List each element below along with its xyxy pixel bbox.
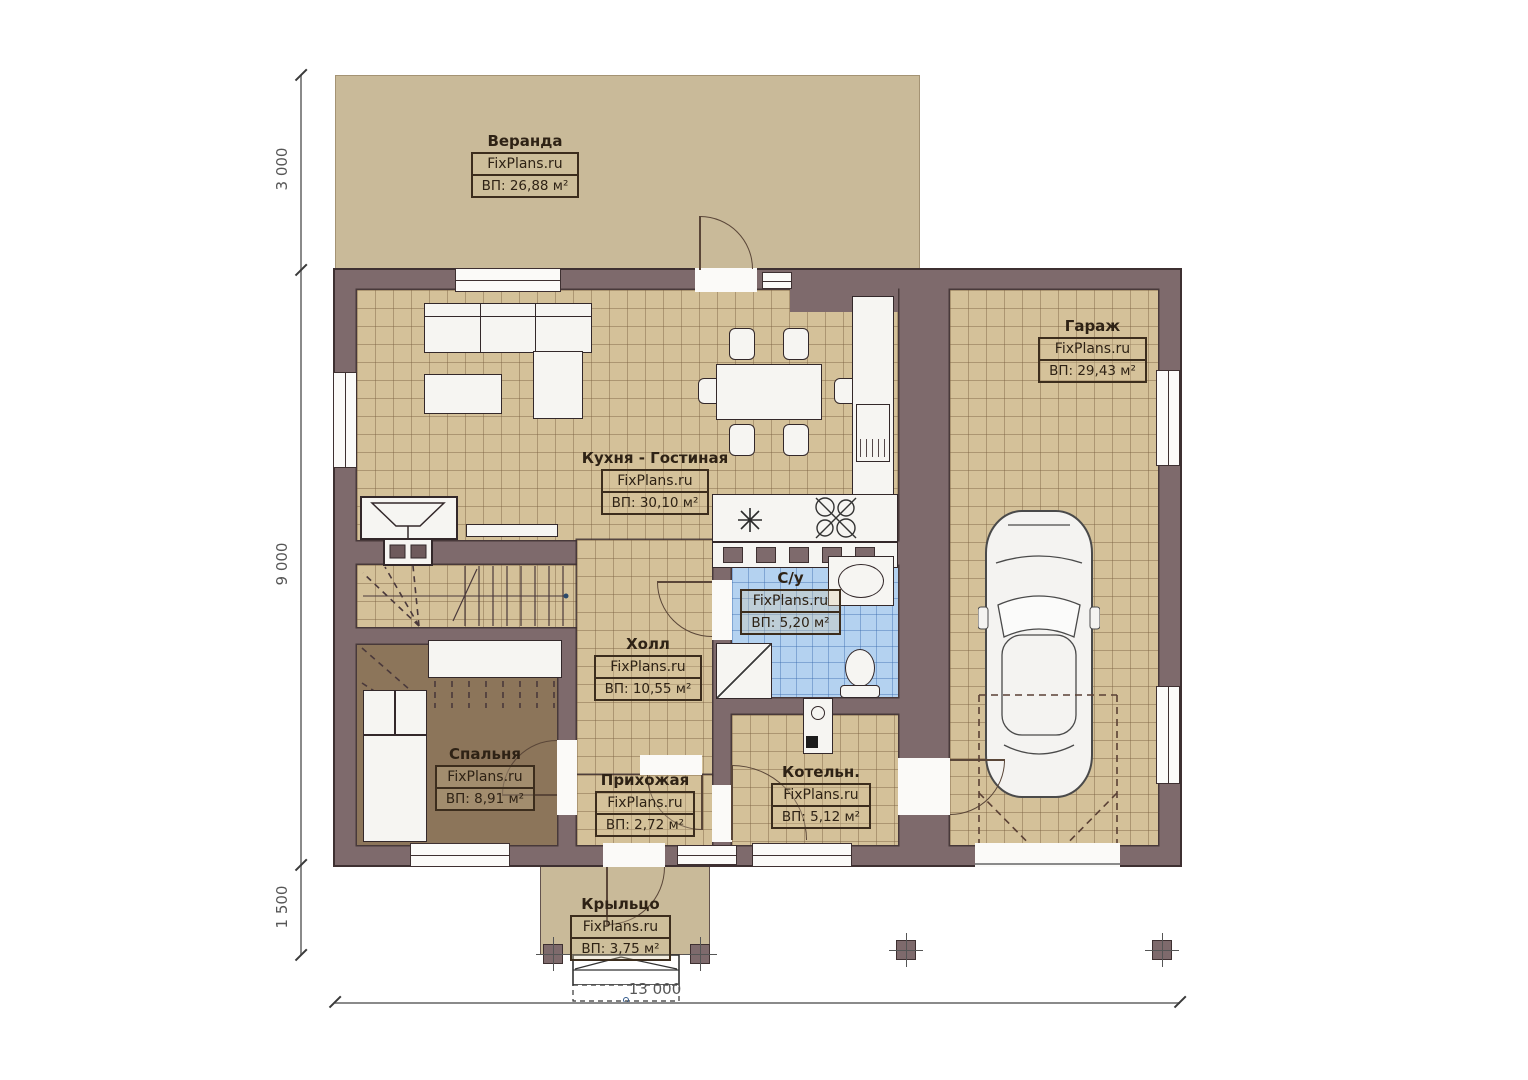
dimension-label-13000: 13 000 (600, 980, 710, 998)
room-name: Спальня (420, 746, 550, 763)
window (1156, 686, 1180, 784)
window (752, 843, 852, 867)
window (333, 372, 357, 468)
sofa-chaise (533, 351, 583, 419)
window (762, 272, 792, 289)
boiler-dial-icon (811, 706, 825, 720)
room-label-bedroom: Спальня FixPlans.ru ВП: 8,91 м² (420, 746, 550, 811)
door-leaf (731, 765, 733, 840)
watermark-text: FixPlans.ru (473, 154, 578, 174)
coffee-table (424, 374, 502, 414)
area-text: ВП: 8,91 м² (437, 787, 533, 809)
room-label-boiler: Котельн. FixPlans.ru ВП: 5,12 м² (762, 764, 880, 829)
boiler-door-gap (712, 785, 732, 842)
tv-stand (466, 524, 558, 537)
dimension-line-bottom (335, 1002, 1180, 1004)
room-name: Котельн. (762, 764, 880, 781)
watermark-text: FixPlans.ru (572, 917, 668, 937)
bed-pillow-line (363, 734, 427, 736)
watermark-text: FixPlans.ru (596, 657, 701, 677)
chair (729, 328, 755, 360)
area-text: ВП: 3,75 м² (572, 937, 668, 959)
cabinet-icon (723, 547, 743, 563)
sofa (424, 303, 592, 353)
cabinet-icon (789, 547, 809, 563)
watermark-text: FixPlans.ru (742, 591, 838, 611)
dimension-label-9000: 9 000 (273, 524, 291, 604)
watermark-text: FixPlans.ru (773, 785, 869, 805)
pillar (896, 940, 916, 960)
room-name: Гараж (1020, 318, 1165, 335)
room-name: Кухня - Гостиная (560, 450, 750, 467)
watermark-text: FixPlans.ru (1040, 339, 1145, 359)
floor-plan-canvas: Веранда FixPlans.ru ВП: 26,88 м² Гараж F… (0, 0, 1528, 1080)
room-name: Холл (583, 636, 713, 653)
chair (783, 328, 809, 360)
door-leaf (950, 759, 1005, 761)
pillar (1152, 940, 1172, 960)
fridge (856, 404, 890, 462)
toilet-tank (840, 685, 880, 698)
room-name: С/у (728, 570, 853, 587)
pillar (690, 944, 710, 964)
area-text: ВП: 26,88 м² (473, 174, 578, 196)
watermark-text: FixPlans.ru (603, 471, 708, 491)
area-text: ВП: 2,72 м² (597, 813, 693, 835)
dimension-line-left (300, 75, 302, 955)
window (677, 845, 737, 865)
area-text: ВП: 29,43 м² (1040, 359, 1145, 381)
garage-pass-door-gap (898, 758, 950, 815)
shower (716, 643, 772, 699)
room-label-garage: Гараж FixPlans.ru ВП: 29,43 м² (1020, 318, 1165, 383)
area-text: ВП: 10,55 м² (596, 677, 701, 699)
bed-pillow-divider (394, 690, 396, 734)
fireplace (360, 496, 460, 568)
room-label-veranda: Веранда FixPlans.ru ВП: 26,88 м² (450, 133, 600, 198)
cabinet-icon (756, 547, 776, 563)
porch-door-gap (603, 843, 665, 867)
dimension-label-1500: 1 500 (273, 867, 291, 947)
stove-icon (812, 494, 860, 542)
area-text: ВП: 5,20 м² (742, 611, 838, 633)
wardrobe (428, 640, 562, 678)
area-text: ВП: 30,10 м² (603, 491, 708, 513)
garage-opening-line (975, 863, 1120, 865)
room-label-kitchen-living: Кухня - Гостиная FixPlans.ru ВП: 30,10 м… (560, 450, 750, 515)
chair (783, 424, 809, 456)
room-label-porch: Крыльцо FixPlans.ru ВП: 3,75 м² (558, 896, 683, 961)
room-name: Веранда (450, 133, 600, 150)
room-label-hall: Холл FixPlans.ru ВП: 10,55 м² (583, 636, 713, 701)
veranda-area (335, 75, 920, 271)
boiler-vent-icon (806, 736, 818, 748)
dimension-label-3000: 3 000 (273, 129, 291, 209)
watermark-text: FixPlans.ru (437, 767, 533, 787)
watermark-text: FixPlans.ru (597, 793, 693, 813)
window (410, 843, 510, 867)
room-label-entry: Прихожая FixPlans.ru ВП: 2,72 м² (585, 772, 705, 837)
door-leaf (657, 581, 712, 583)
kitchen-counter-right (852, 296, 894, 500)
room-name: Прихожая (585, 772, 705, 789)
area-text: ВП: 5,12 м² (773, 805, 869, 827)
window (455, 268, 561, 292)
room-name: Крыльцо (558, 896, 683, 913)
bedroom-door-gap (557, 740, 577, 815)
window (1156, 370, 1180, 466)
door-leaf (699, 216, 701, 270)
toilet-bowl-icon (845, 649, 875, 687)
dining-table (716, 364, 822, 420)
veranda-door-gap (695, 268, 757, 292)
room-label-bathroom: С/у FixPlans.ru ВП: 5,20 м² (728, 570, 853, 635)
